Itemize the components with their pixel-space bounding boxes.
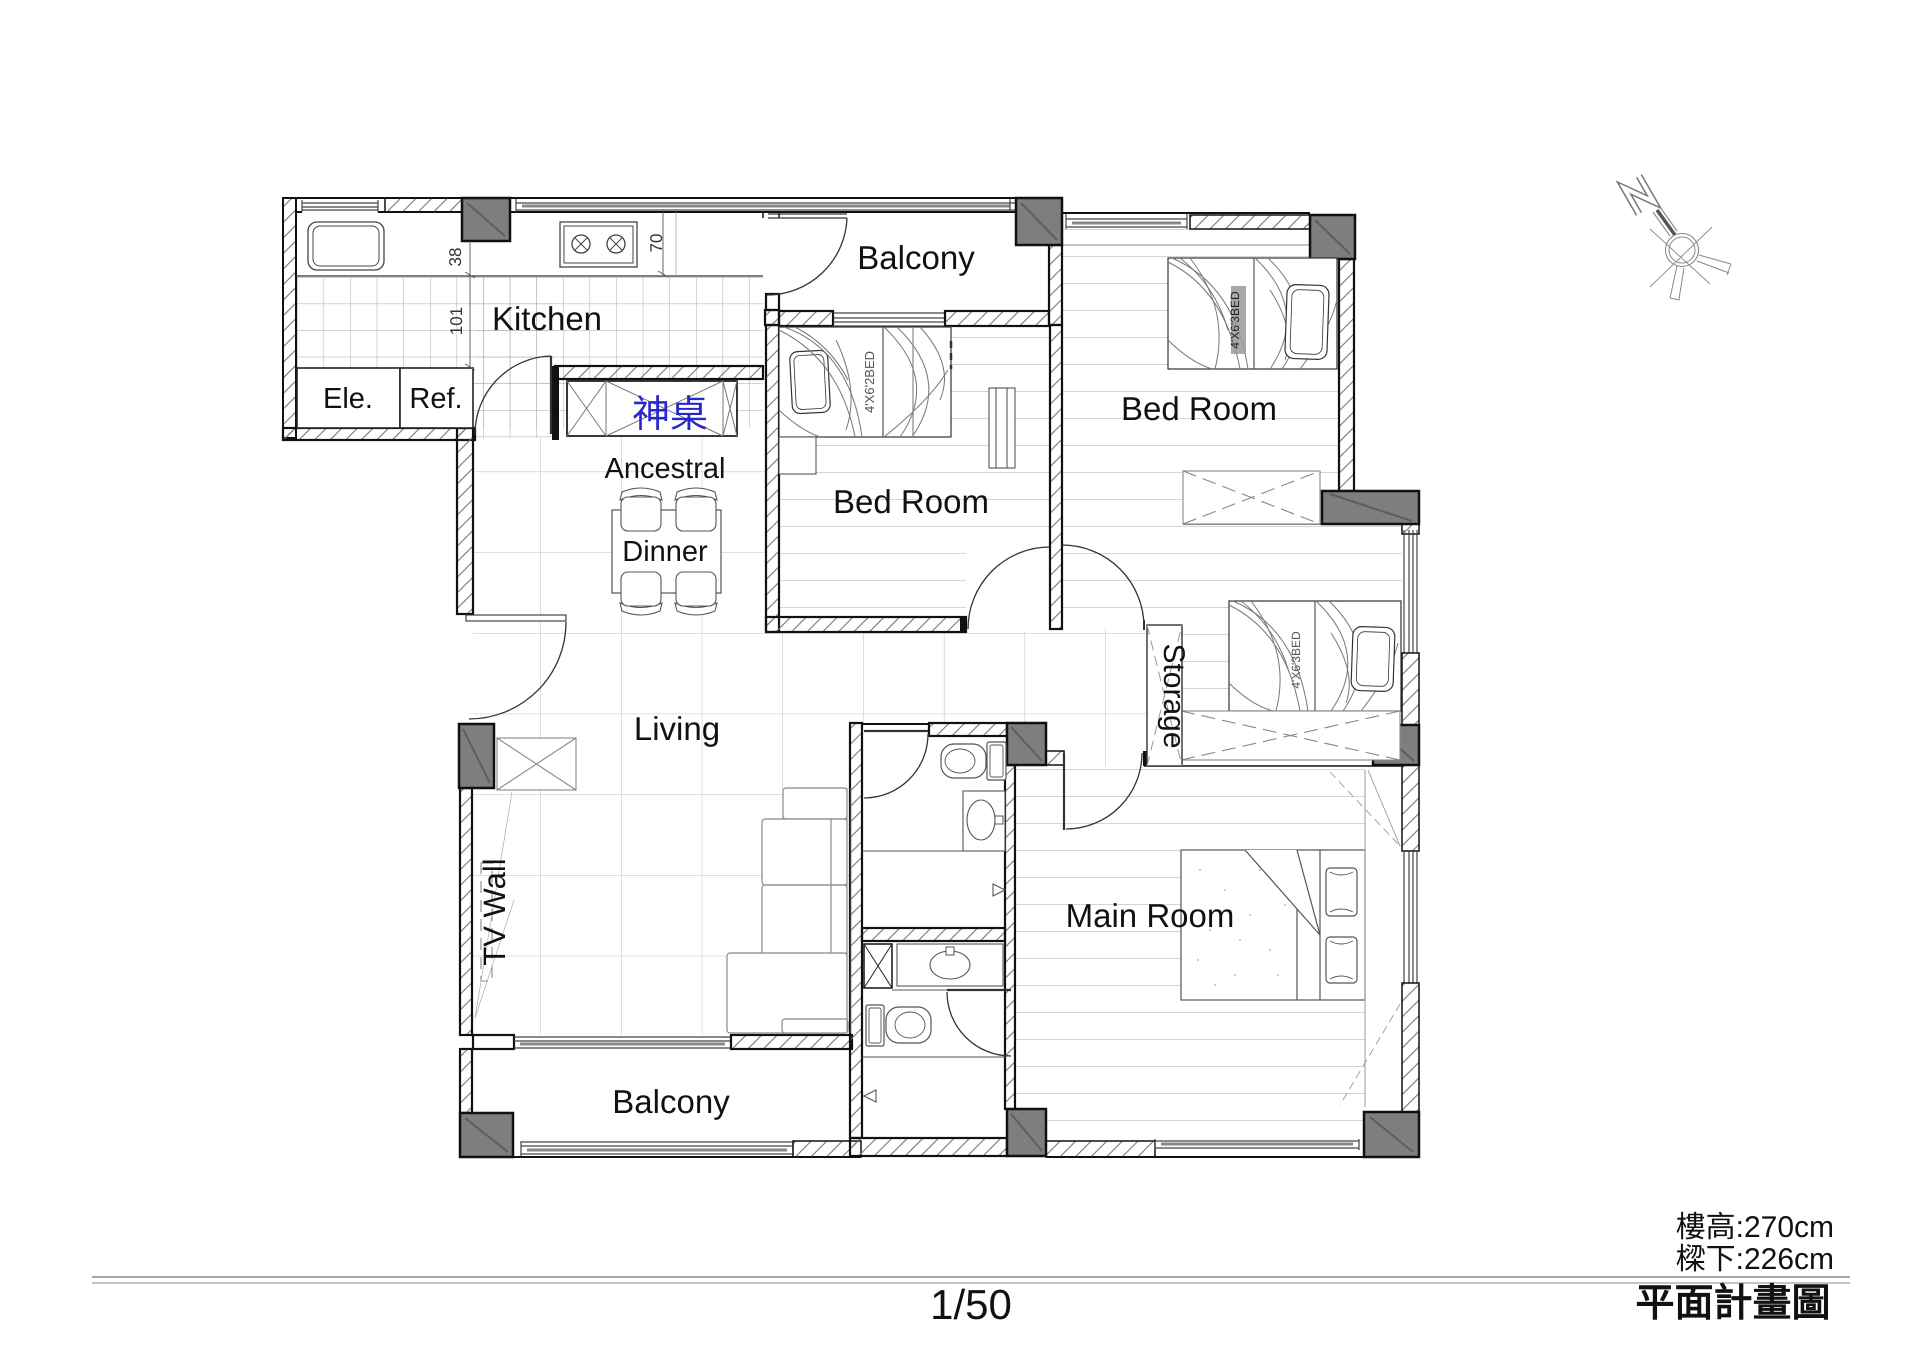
svg-text:Dinner: Dinner bbox=[622, 536, 708, 568]
svg-text:樑下:226cm: 樑下:226cm bbox=[1676, 1243, 1834, 1276]
svg-text:Bed Room: Bed Room bbox=[833, 483, 989, 520]
svg-text:4'X6'3BED: 4'X6'3BED bbox=[1289, 631, 1303, 689]
svg-text:Kitchen: Kitchen bbox=[492, 300, 602, 337]
svg-text:1/50: 1/50 bbox=[930, 1281, 1012, 1328]
svg-text:4'X6'3BED: 4'X6'3BED bbox=[1228, 291, 1242, 349]
svg-text:神桌: 神桌 bbox=[632, 394, 708, 436]
svg-text:101: 101 bbox=[447, 307, 466, 335]
svg-text:70: 70 bbox=[647, 234, 666, 253]
svg-text:Bed Room: Bed Room bbox=[1121, 390, 1277, 427]
svg-text:Ancestral: Ancestral bbox=[605, 453, 726, 485]
svg-text:Ref.: Ref. bbox=[409, 383, 462, 415]
svg-text:Main Room: Main Room bbox=[1066, 897, 1235, 934]
svg-text:Living: Living bbox=[634, 710, 720, 747]
svg-text:樓高:270cm: 樓高:270cm bbox=[1676, 1211, 1834, 1244]
svg-text:Balcony: Balcony bbox=[612, 1083, 730, 1120]
svg-text:TV Wall: TV Wall bbox=[477, 858, 512, 965]
svg-text:平面計畫圖: 平面計畫圖 bbox=[1635, 1282, 1830, 1325]
svg-text:4'X6'2BED: 4'X6'2BED bbox=[862, 351, 877, 413]
svg-text:38: 38 bbox=[446, 248, 465, 267]
svg-text:Ele.: Ele. bbox=[323, 383, 373, 415]
svg-text:Balcony: Balcony bbox=[857, 239, 975, 276]
svg-text:Storage: Storage bbox=[1157, 643, 1190, 748]
